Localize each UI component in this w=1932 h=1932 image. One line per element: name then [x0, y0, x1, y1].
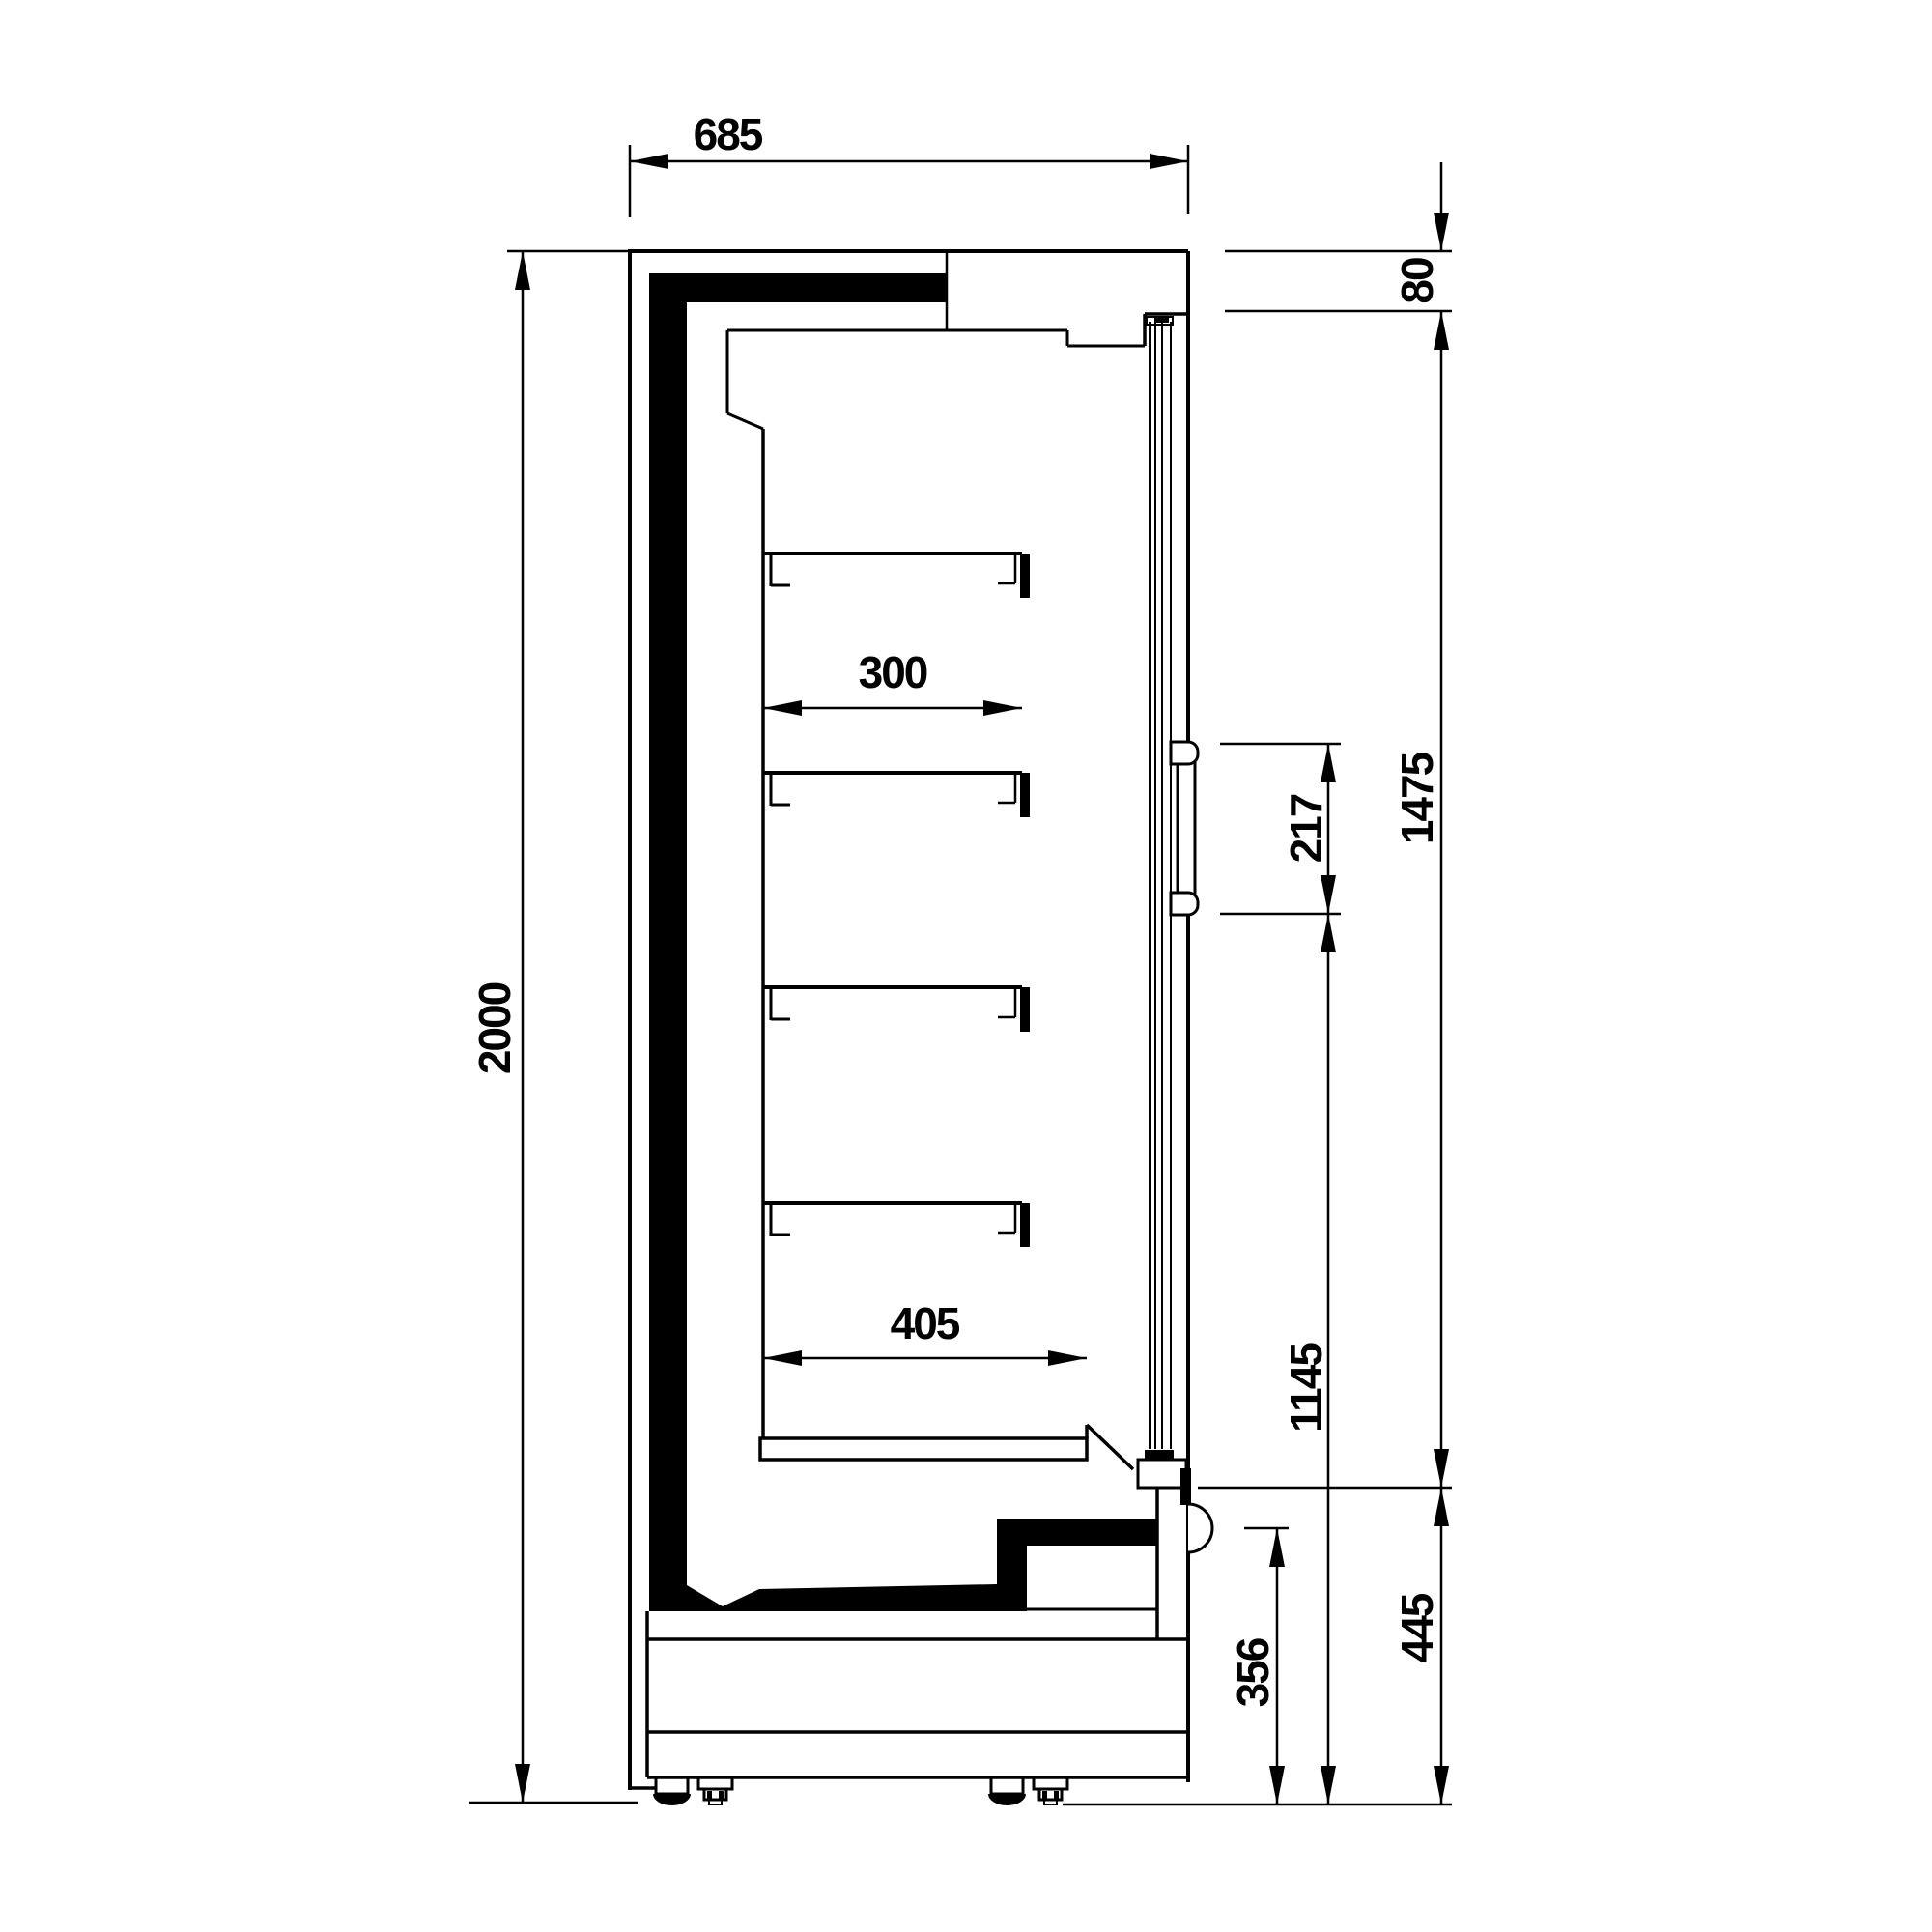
foot-tip: [1044, 1800, 1057, 1804]
shelf-price-rail: [1020, 773, 1030, 817]
arrow-down: [1434, 213, 1449, 251]
foot-front-dome: [988, 1777, 1026, 1805]
dimension-shelf-depth: 300: [763, 647, 1022, 716]
door-top-gasket: [1154, 318, 1169, 323]
shelf-4: [763, 1203, 1030, 1247]
drawing-canvas: 685 2000 300 405 80 1475: [0, 0, 1932, 1932]
sensor-dome: [1188, 1504, 1212, 1552]
foot-flange: [1034, 1777, 1067, 1789]
dimension-handle-length: 217: [1220, 744, 1341, 914]
shelf-2: [763, 773, 1030, 817]
foot-body: [991, 1777, 1023, 1794]
arrow-left: [763, 1350, 802, 1366]
dim-label-depth-total: 685: [694, 109, 763, 159]
handle-grip: [1178, 753, 1195, 904]
foot-body: [656, 1777, 688, 1794]
door-bottom-rail: [1138, 1460, 1186, 1488]
shelf-3: [763, 987, 1030, 1032]
door-bottom-edge-seal: [1180, 1468, 1191, 1505]
arrow-down: [1269, 1766, 1285, 1804]
foot-mark: [1054, 1791, 1059, 1800]
dim-label-sensor-height: 356: [1228, 1638, 1278, 1707]
arrow-down: [1434, 1766, 1449, 1804]
arrow-right: [1150, 154, 1188, 169]
shelf-price-rail: [1020, 987, 1030, 1032]
foot-rear-screw: [698, 1777, 732, 1804]
arrow-down: [515, 1764, 530, 1803]
dim-label-handle-to-floor: 1145: [1281, 1343, 1331, 1433]
foot-mark: [1042, 1791, 1047, 1800]
handle-bottom-mount: [1171, 893, 1198, 915]
dim-label-door-height: 1475: [1392, 752, 1442, 844]
foot-rear-dome: [653, 1777, 691, 1805]
foot-flange: [698, 1777, 732, 1789]
dim-label-base-height: 445: [1392, 1593, 1442, 1662]
shelf-price-rail: [1020, 1203, 1030, 1247]
base-deck: [760, 1425, 1133, 1469]
dim-label-shelf-depth: 300: [859, 647, 927, 697]
arrow-up: [515, 251, 530, 290]
foot-tip: [709, 1800, 722, 1804]
shelf-price-rail: [1020, 554, 1030, 598]
arrow-down: [1434, 1449, 1449, 1488]
arrow-down: [1321, 875, 1336, 914]
dimension-height-total: 2000: [469, 251, 638, 1803]
arrow-down: [1321, 1766, 1336, 1804]
dimension-door-height: 1475: [1198, 311, 1452, 1804]
technical-drawing: 685 2000 300 405 80 1475: [0, 0, 1932, 1932]
rear-liner: [727, 330, 763, 1438]
dimension-depth-total: 685: [630, 109, 1188, 217]
dimension-top-panel: 80: [1225, 162, 1452, 350]
dim-label-height-total: 2000: [469, 982, 520, 1074]
dim-label-base-shelf-depth: 405: [891, 1298, 960, 1349]
arrow-up: [1321, 914, 1336, 952]
door-handle: [1171, 742, 1198, 915]
handle-top-mount: [1171, 742, 1198, 764]
dim-label-handle-length: 217: [1281, 794, 1331, 863]
arrow-right: [1048, 1350, 1087, 1366]
dim-label-top-panel: 80: [1392, 258, 1442, 304]
arrow-left: [763, 700, 802, 716]
dimension-base-shelf-depth: 405: [763, 1298, 1087, 1366]
foot-mark: [719, 1791, 724, 1800]
arrow-up: [1434, 1488, 1449, 1526]
foot-pad: [988, 1794, 1026, 1805]
arrow-up: [1269, 1528, 1285, 1567]
deck-plate: [760, 1438, 1087, 1460]
arrow-up: [1321, 744, 1336, 782]
deck-nose-diagonal: [1087, 1425, 1133, 1469]
dimension-handle-to-floor: 1145: [1281, 914, 1336, 1804]
dimension-sensor-height: 356: [1228, 1528, 1289, 1804]
foot-pad: [653, 1794, 691, 1805]
arrow-left: [630, 154, 668, 169]
foot-mark: [707, 1791, 712, 1800]
arrow-right: [983, 700, 1022, 716]
cabinet-outline: [628, 249, 1188, 1790]
shelf-1: [763, 554, 1030, 598]
insulation-section: [649, 273, 1157, 1611]
liner-jog: [727, 413, 763, 429]
foot-front-screw: [1034, 1777, 1067, 1804]
